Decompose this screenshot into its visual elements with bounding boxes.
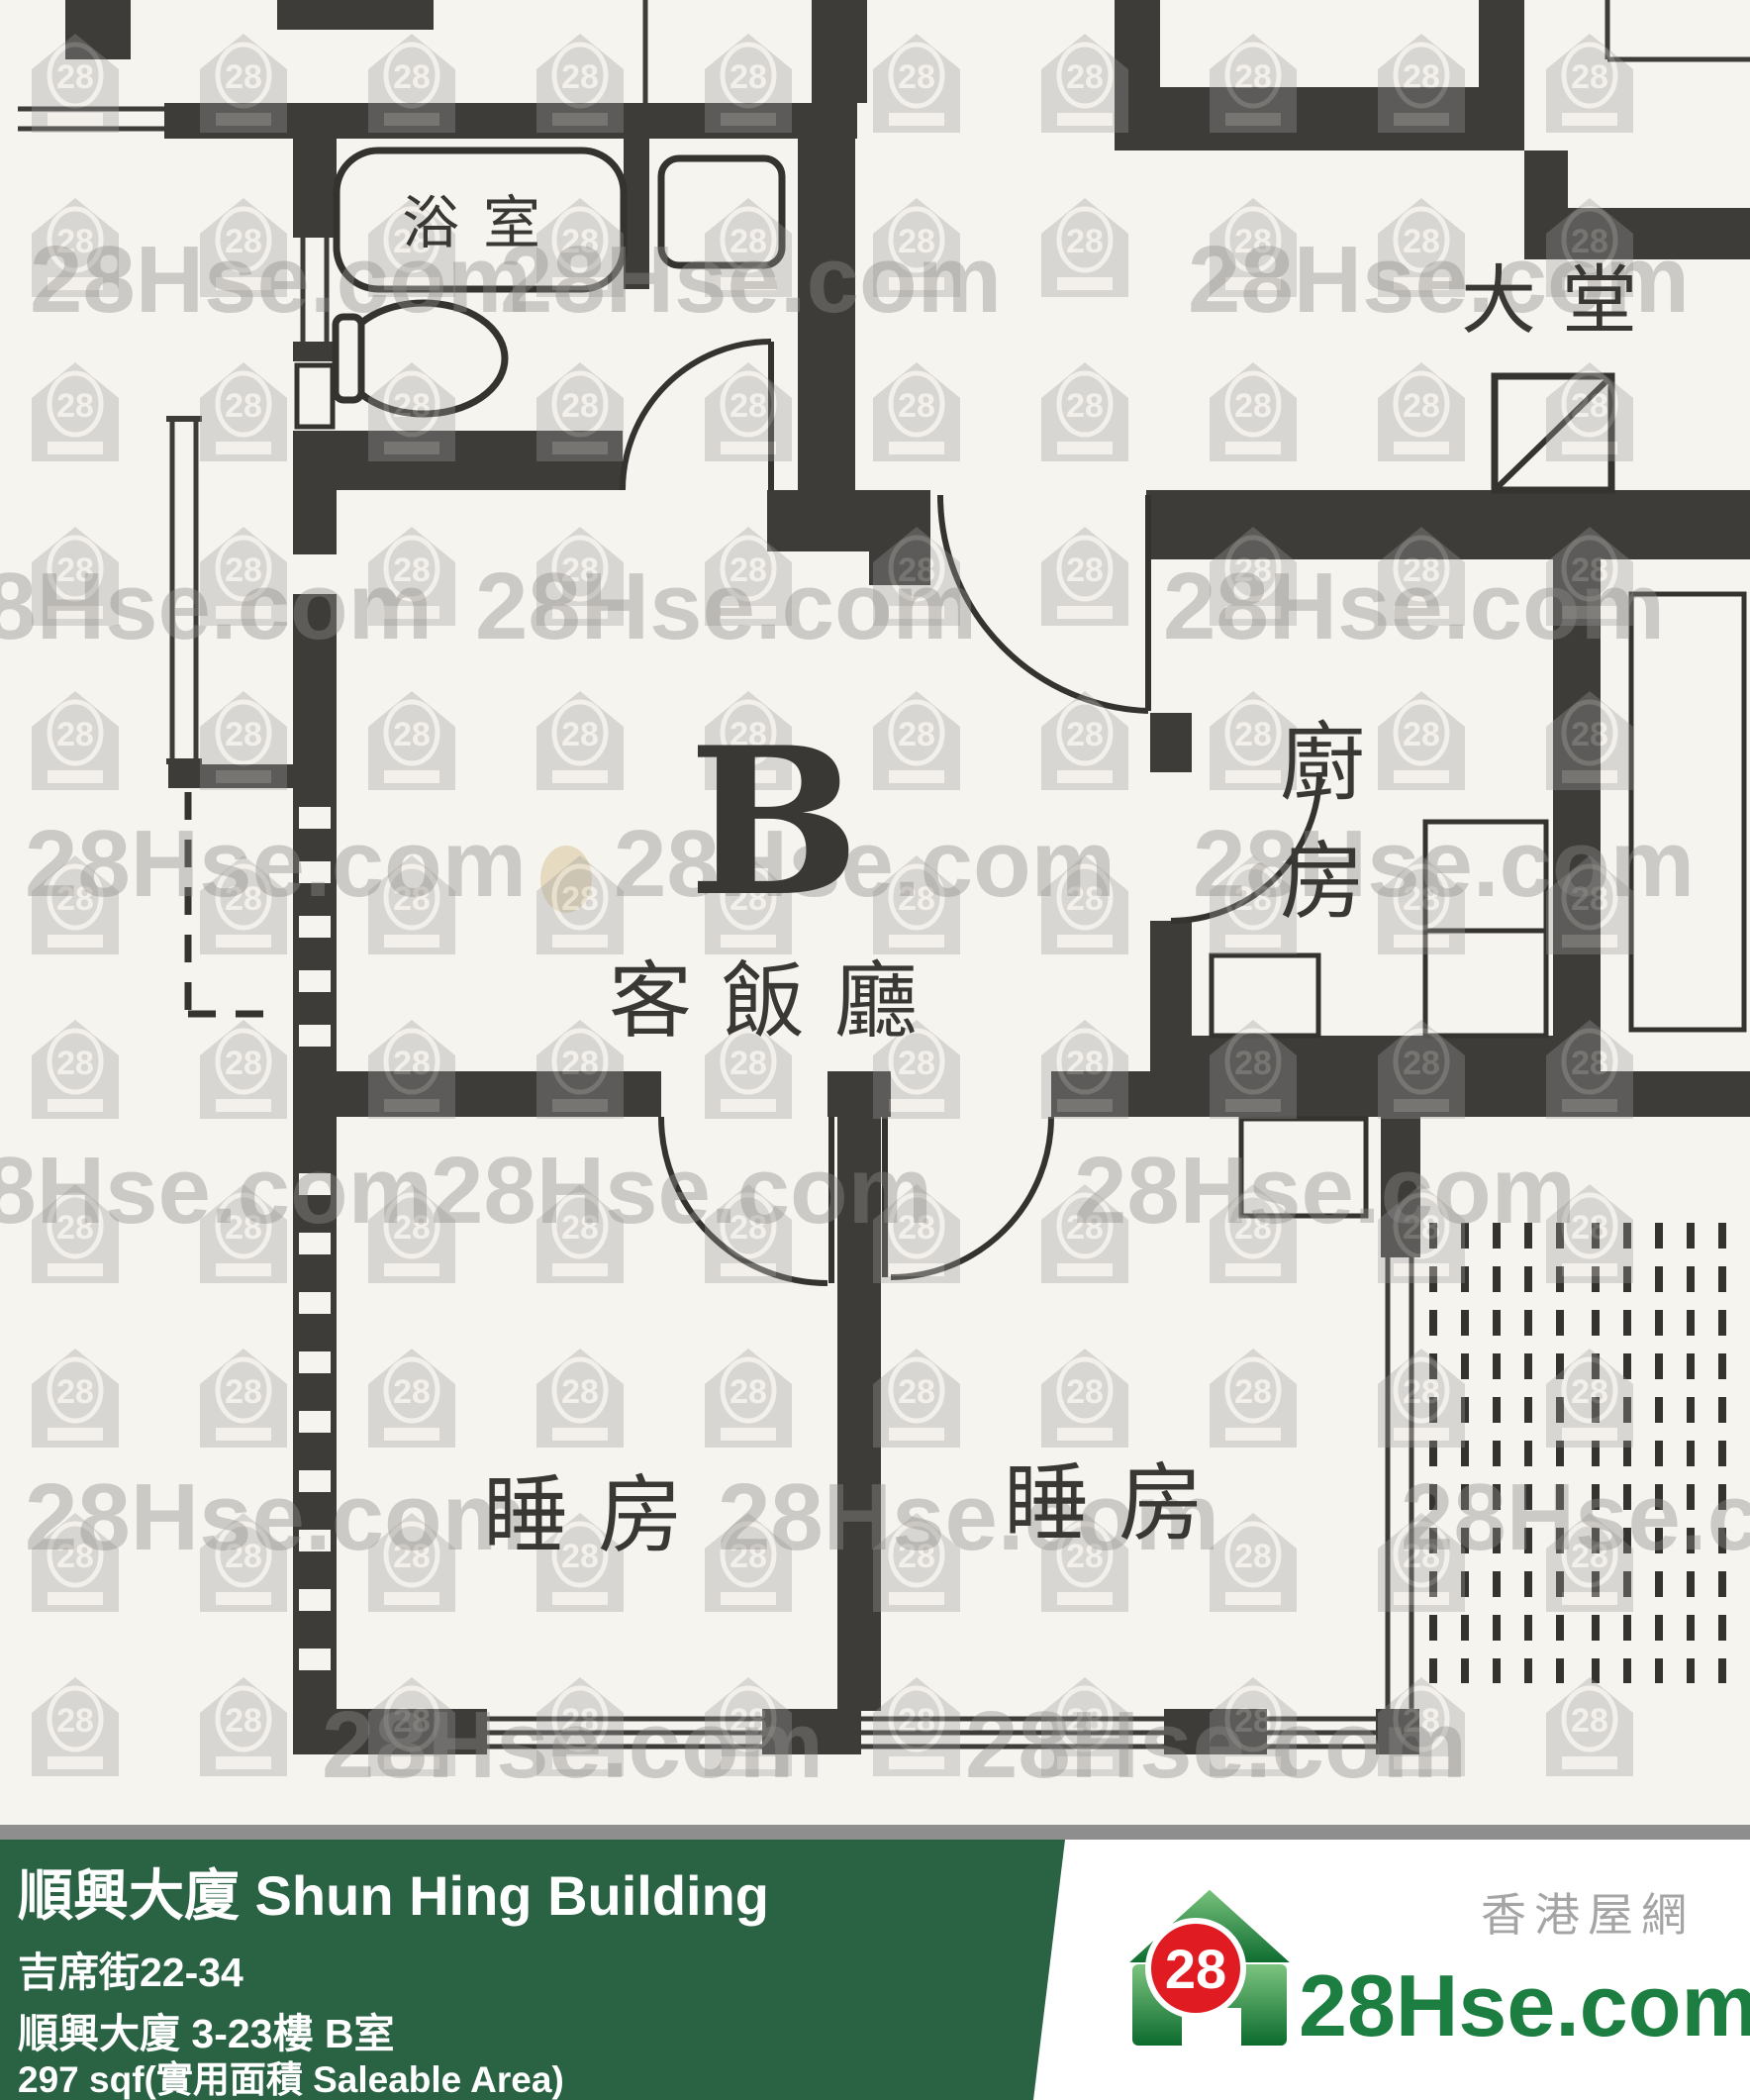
footer-area: 297 sqf(實用面積 Saleable Area) xyxy=(18,2059,564,2100)
footer-gray-strip xyxy=(0,1825,1750,1840)
label-lobby: 大堂 xyxy=(1461,259,1663,344)
label-unit: B xyxy=(688,704,859,942)
watermark-text: 28Hse.com xyxy=(1163,553,1665,659)
label-bedroom-left: 睡房 xyxy=(483,1468,713,1563)
watermark-text: 28Hse.com xyxy=(965,1692,1467,1798)
watermark-text: 28Hse.com xyxy=(25,811,527,917)
watermark-text: 28Hse.com xyxy=(25,1464,527,1570)
watermark-text: 28Hse.com xyxy=(1401,1464,1750,1570)
watermark-text: 28Hse.com xyxy=(1074,1138,1576,1244)
logo-site-name: 28Hse.com xyxy=(1299,1956,1750,2054)
footer-title: 順興大廈 Shun Hing Building xyxy=(18,1864,769,1927)
footer: 順興大廈 Shun Hing Building 吉席街22-34 順興大廈 3-… xyxy=(0,1825,1750,2100)
label-bedroom-right: 睡房 xyxy=(1004,1456,1233,1551)
watermark-text: 28Hse.com xyxy=(500,227,1002,333)
floorplan-page: 28 xyxy=(0,0,1750,2100)
watermark-text: 28Hse.com xyxy=(0,553,433,659)
watermark-text: 28Hse.com xyxy=(1193,811,1695,917)
label-living-dining: 客飯廳 xyxy=(609,954,947,1048)
watermark-text: 28Hse.com xyxy=(0,1138,433,1244)
label-kitchen-char-2: 房 xyxy=(1280,835,1365,930)
logo-badge-number: 28 xyxy=(1165,1938,1226,2000)
label-bathroom: 浴室 xyxy=(402,191,564,255)
watermark-text: 28Hse.com xyxy=(475,553,977,659)
footer-address: 吉席街22-34 xyxy=(18,1950,243,1995)
label-kitchen-char-1: 廚 xyxy=(1280,716,1365,811)
logo-tagline: 香港屋網 xyxy=(1481,1889,1695,1941)
watermark-text: 28Hse.com xyxy=(322,1692,824,1798)
footer-unit-info: 順興大廈 3-23樓 B室 xyxy=(18,2011,394,2056)
watermark-text: 28Hse.com xyxy=(431,1138,932,1244)
